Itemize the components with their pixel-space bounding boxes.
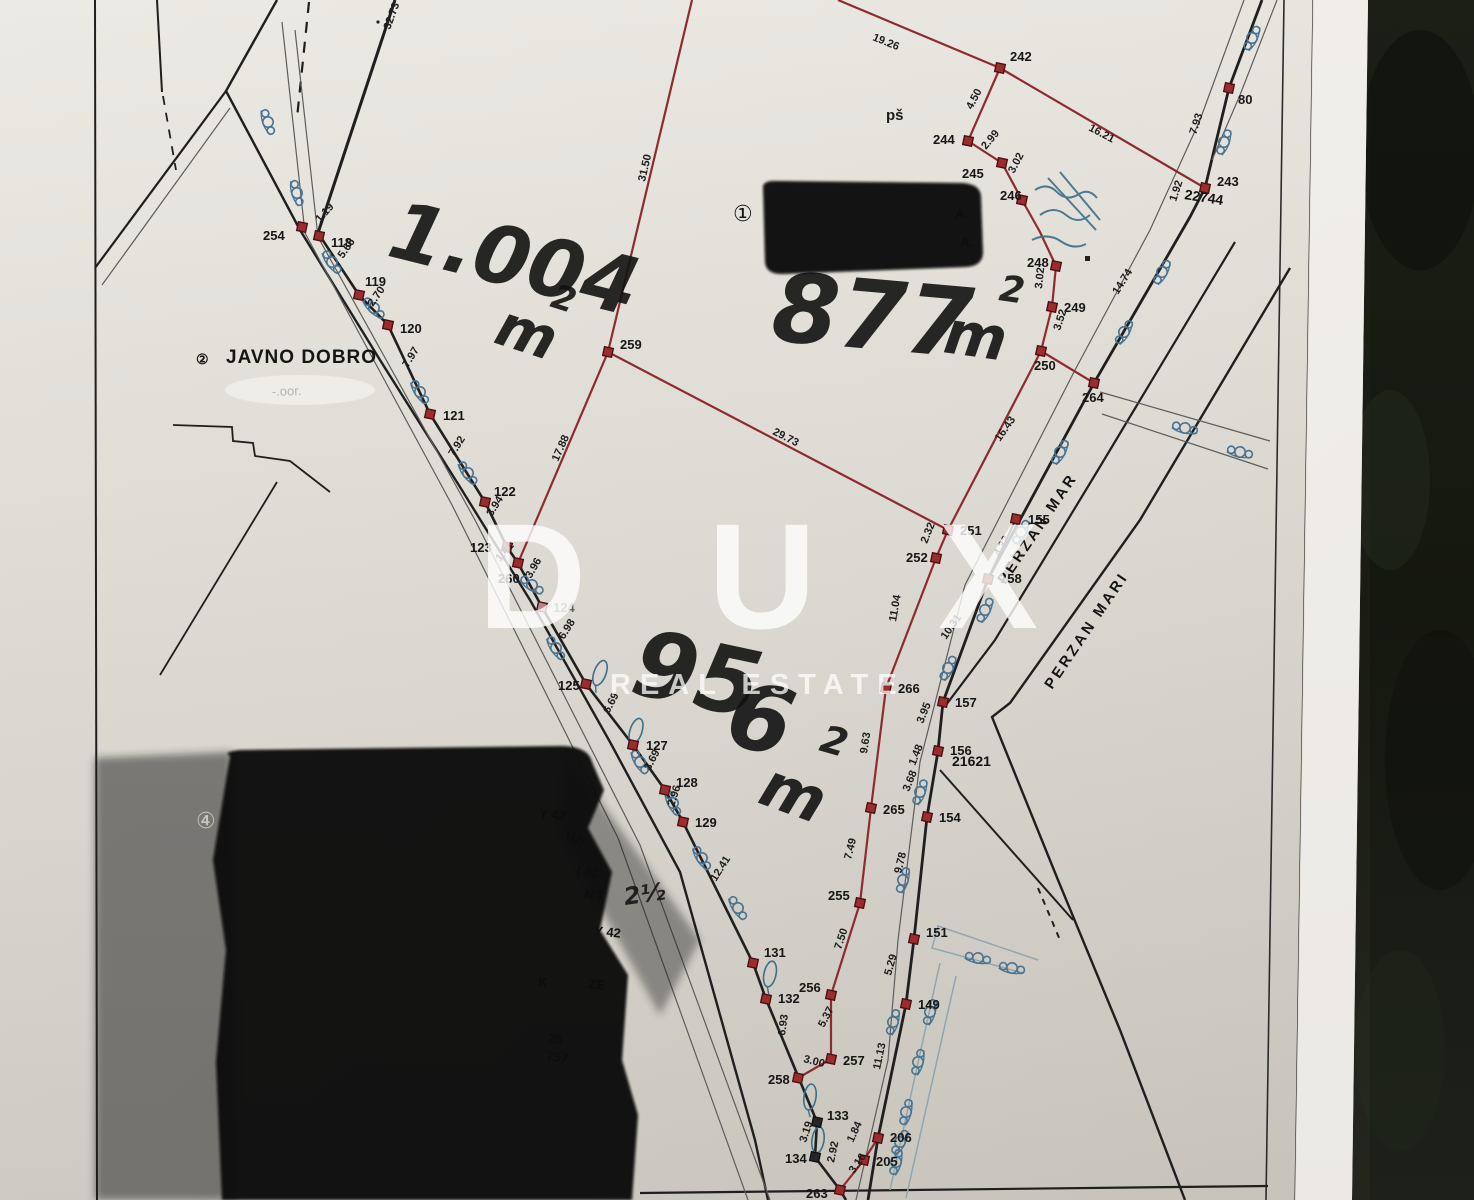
survey-point bbox=[314, 231, 325, 242]
survey-point bbox=[1089, 378, 1100, 389]
survey-point-label: 264 bbox=[1082, 390, 1104, 405]
erased-text: -.oor. bbox=[272, 383, 302, 399]
survey-point-label: 246 bbox=[1000, 188, 1022, 203]
survey-point-label: 206 bbox=[890, 1130, 912, 1145]
survey-point bbox=[995, 63, 1006, 74]
survey-point-label: 263 bbox=[806, 1186, 828, 1200]
survey-point bbox=[383, 320, 394, 331]
zone4-symbol: ④ bbox=[196, 808, 216, 833]
watermark-brand: D U X bbox=[478, 492, 1078, 660]
survey-point-label: 129 bbox=[695, 815, 717, 830]
survey-point bbox=[866, 803, 877, 814]
survey-point-label: 120 bbox=[400, 321, 422, 336]
survey-point bbox=[909, 934, 920, 945]
survey-point bbox=[835, 1185, 846, 1196]
survey-point-label: 245 bbox=[962, 166, 984, 181]
survey-point-label: 133 bbox=[827, 1108, 849, 1123]
survey-point bbox=[1047, 302, 1058, 313]
zone1-symbol: ① bbox=[733, 201, 753, 226]
survey-point-label: 244 bbox=[933, 132, 955, 147]
cadastral-map-photo: 2541181191201211221232601241251271281291… bbox=[0, 0, 1474, 1200]
watermark-subtitle: REAL ESTATE bbox=[610, 669, 906, 701]
survey-point bbox=[793, 1073, 804, 1084]
survey-point-label: 132 bbox=[778, 991, 800, 1006]
parcel-number-21621: 21621 bbox=[952, 753, 991, 769]
survey-point bbox=[354, 290, 365, 301]
survey-point bbox=[826, 1054, 837, 1065]
survey-point bbox=[1224, 83, 1235, 94]
survey-point-label: 157 bbox=[955, 695, 977, 710]
survey-point bbox=[748, 958, 759, 969]
survey-point-label: 265 bbox=[883, 802, 905, 817]
survey-point bbox=[873, 1133, 884, 1144]
survey-point bbox=[425, 409, 436, 420]
survey-point bbox=[938, 697, 949, 708]
survey-point-label: 205 bbox=[876, 1154, 898, 1169]
survey-point-label: 125 bbox=[558, 678, 580, 693]
survey-point bbox=[933, 746, 944, 757]
survey-point bbox=[761, 994, 772, 1005]
survey-point-label: 80 bbox=[1238, 92, 1252, 107]
ps-label: pš bbox=[886, 107, 904, 124]
survey-point bbox=[826, 990, 837, 1001]
survey-point bbox=[901, 999, 912, 1010]
survey-point bbox=[581, 679, 592, 690]
survey-point bbox=[1051, 261, 1062, 272]
survey-point bbox=[963, 136, 974, 147]
zone2-symbol: ② bbox=[196, 351, 209, 367]
survey-point-label: 259 bbox=[620, 337, 642, 352]
survey-point bbox=[678, 817, 689, 828]
survey-point-label: 258 bbox=[768, 1072, 790, 1087]
redaction-main bbox=[213, 746, 638, 1200]
survey-point bbox=[297, 222, 308, 233]
survey-point-label: 243 bbox=[1217, 174, 1239, 189]
survey-point bbox=[997, 158, 1008, 169]
survey-point-label: 257 bbox=[843, 1053, 865, 1068]
survey-point bbox=[603, 347, 614, 358]
survey-point-label: 151 bbox=[926, 925, 948, 940]
survey-point-label: 254 bbox=[263, 228, 285, 243]
measurement-label: 3.02 bbox=[1033, 267, 1047, 290]
survey-point-label: 242 bbox=[1010, 49, 1032, 64]
survey-point bbox=[922, 812, 933, 823]
zone2-label: JAVNO DOBRO bbox=[226, 347, 377, 368]
survey-point-label: 149 bbox=[918, 997, 940, 1012]
survey-point-label: 255 bbox=[828, 888, 850, 903]
map-drawing: 2541181191201211221232601241251271281291… bbox=[0, 0, 1474, 1200]
survey-point bbox=[1036, 346, 1047, 357]
survey-point-label: 256 bbox=[799, 980, 821, 995]
survey-point bbox=[810, 1152, 821, 1163]
survey-point-label: 121 bbox=[443, 408, 465, 423]
redaction-top bbox=[763, 181, 983, 274]
survey-point-label: 250 bbox=[1034, 358, 1056, 373]
survey-point bbox=[628, 740, 639, 751]
survey-point bbox=[855, 898, 866, 909]
survey-point-label: 154 bbox=[939, 810, 961, 825]
survey-point-label: 131 bbox=[764, 945, 786, 960]
survey-point-label: 134 bbox=[785, 1151, 807, 1166]
